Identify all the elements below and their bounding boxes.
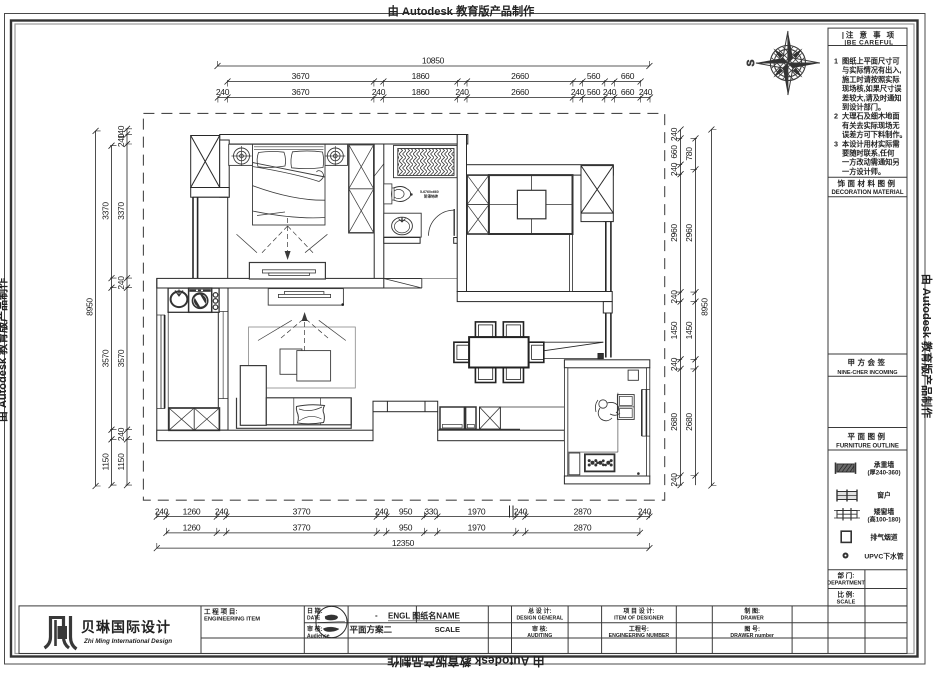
svg-text:矮窗墙: 矮窗墙 [873,507,895,516]
svg-text:2680: 2680 [669,413,679,431]
svg-text:ENGINEERING NUMBER: ENGINEERING NUMBER [609,633,670,639]
svg-text:AUDITING: AUDITING [527,633,552,639]
svg-text:240: 240 [116,276,126,290]
svg-text:240: 240 [603,87,617,97]
svg-text:DRAWER: DRAWER [741,616,764,622]
svg-text:5-6760x660: 5-6760x660 [420,190,439,194]
svg-text:部 门:: 部 门: [838,571,855,580]
svg-text:Audience: Audience [307,634,330,640]
svg-text:由 Autodesk 教育版产品制作: 由 Autodesk 教育版产品制作 [0,278,9,422]
svg-text:240: 240 [372,87,386,97]
svg-text:误差方可下料制作。: 误差方可下料制作。 [842,130,907,139]
svg-text:2: 2 [834,112,838,121]
svg-text:图纸上平面尺寸可: 图纸上平面尺寸可 [842,57,900,66]
svg-text:UPVC下水管: UPVC下水管 [864,552,903,561]
svg-text:240: 240 [571,87,585,97]
svg-text:240: 240 [669,473,679,487]
svg-text:甲方会签: 甲方会签 [848,357,888,367]
svg-text:一方改动需通知另: 一方改动需通知另 [842,158,900,167]
svg-text:工程号:: 工程号: [629,625,649,633]
svg-text:8950: 8950 [700,298,710,316]
svg-text:(高100-180): (高100-180) [867,516,900,524]
svg-text:大理石及细木地面: 大理石及细木地面 [842,112,900,121]
svg-text:950: 950 [399,523,413,533]
svg-text:240: 240 [455,87,469,97]
svg-text:SCALE: SCALE [837,600,856,606]
svg-text:1450: 1450 [669,321,679,339]
svg-text:|BE CAREFUL: |BE CAREFUL [844,40,893,47]
svg-text:排气烟道: 排气烟道 [870,533,897,542]
svg-text:2660: 2660 [511,87,529,97]
svg-text:DECORATION MATERIAL: DECORATION MATERIAL [831,190,903,196]
svg-text:图 号:: 图 号: [744,625,760,633]
svg-text:|注 意 事 项: |注 意 事 项 [842,30,896,40]
svg-text:780: 780 [684,147,694,161]
svg-text:平面图例: 平面图例 [848,431,888,441]
svg-text:3370: 3370 [116,202,126,220]
svg-text:施工时请按照实际: 施工时请按照实际 [842,75,900,84]
svg-text:660: 660 [621,87,635,97]
svg-text:FURNITURE OUTLINE: FURNITURE OUTLINE [836,444,899,450]
svg-text:3770: 3770 [293,506,311,516]
svg-text:DEPARTMENT: DEPARTMENT [827,581,865,587]
svg-text:1150: 1150 [116,453,126,471]
svg-text:240: 240 [669,127,679,141]
svg-text:日 期:: 日 期: [307,607,323,615]
svg-text:12350: 12350 [392,538,415,548]
svg-text:有关去实际现场无: 有关去实际现场无 [842,121,900,130]
svg-text:1260: 1260 [183,523,201,533]
svg-text:560: 560 [587,71,601,81]
svg-text:总 设 计:: 总 设 计: [528,607,551,615]
svg-text:本设计用材实际需: 本设计用材实际需 [842,139,900,148]
svg-text:240: 240 [116,133,126,147]
svg-text:(厚240-360): (厚240-360) [867,469,900,477]
svg-text:-: - [375,611,378,620]
svg-text:3670: 3670 [292,87,310,97]
svg-text:1260: 1260 [183,506,201,516]
svg-text:饰面材料图例: 饰面材料图例 [838,178,898,188]
svg-text:由 Autodesk 教育版产品制作: 由 Autodesk 教育版产品制作 [920,274,934,418]
svg-text:560: 560 [587,87,601,97]
svg-text:ENGL 图纸名NAME: ENGL 图纸名NAME [388,611,461,621]
svg-text:1970: 1970 [468,506,486,516]
svg-text:承重墙: 承重墙 [874,460,895,469]
svg-text:240: 240 [639,87,653,97]
svg-text:由 Autodesk 教育版产品制作: 由 Autodesk 教育版产品制作 [387,654,544,669]
svg-text:1970: 1970 [468,523,486,533]
svg-text:比 例:: 比 例: [838,590,855,599]
svg-text:3570: 3570 [101,349,111,367]
svg-text:项 目 设 计:: 项 目 设 计: [623,607,654,615]
svg-text:2680: 2680 [684,413,694,431]
svg-text:1: 1 [834,57,838,66]
svg-text:ITEM OF DESIGNER: ITEM OF DESIGNER [614,616,664,622]
svg-text:3770: 3770 [293,523,311,533]
svg-text:3670: 3670 [292,71,310,81]
svg-text:Zhi Ming International Design: Zhi Ming International Design [83,638,172,645]
svg-text:240: 240 [216,87,230,97]
svg-text:ENGINEERING ITEM: ENGINEERING ITEM [204,617,260,623]
svg-text:一方设计师。: 一方设计师。 [842,167,885,176]
svg-text:1860: 1860 [412,71,430,81]
svg-text:2870: 2870 [574,506,592,516]
svg-text:2960: 2960 [684,224,694,242]
svg-text:到设计部门。: 到设计部门。 [842,103,885,112]
svg-text:S: S [746,59,757,66]
svg-text:审 核:: 审 核: [307,625,323,633]
svg-text:240: 240 [116,427,126,441]
svg-text:3370: 3370 [101,202,111,220]
svg-text:2870: 2870 [574,523,592,533]
svg-text:防滑地砖: 防滑地砖 [424,194,438,199]
svg-text:现场核,如果尺寸误: 现场核,如果尺寸误 [842,84,902,93]
svg-text:差较大,请及时通知: 差较大,请及时通知 [842,93,902,102]
svg-text:制 图:: 制 图: [744,607,760,615]
svg-text:工 程 项 目:: 工 程 项 目: [204,607,238,616]
svg-text:10850: 10850 [422,56,445,66]
svg-text:330: 330 [424,506,438,516]
svg-text:3570: 3570 [116,349,126,367]
svg-text:DRAWER number: DRAWER number [730,633,774,639]
svg-text:由 Autodesk 教育版产品制作: 由 Autodesk 教育版产品制作 [388,4,535,18]
svg-text:2960: 2960 [669,224,679,242]
svg-text:1450: 1450 [684,321,694,339]
svg-text:660: 660 [669,145,679,159]
svg-text:1860: 1860 [412,87,430,97]
svg-text:1150: 1150 [101,453,111,471]
svg-text:与实际情况有出入,: 与实际情况有出入, [842,66,902,75]
svg-text:贝琳国际设计: 贝琳国际设计 [81,619,171,635]
svg-text:NINE-CHER INCOMING: NINE-CHER INCOMING [837,370,897,376]
svg-text:平面方案二: 平面方案二 [350,625,393,635]
svg-text:DATE: DATE [307,616,321,622]
svg-text:660: 660 [621,71,635,81]
svg-text:8950: 8950 [85,298,95,316]
svg-text:3: 3 [834,139,838,148]
svg-text:950: 950 [399,506,413,516]
svg-text:DESIGN GENERAL: DESIGN GENERAL [516,616,564,622]
svg-text:SCALE: SCALE [435,625,460,634]
svg-text:2660: 2660 [511,71,529,81]
svg-text:要随时联系,任何: 要随时联系,任何 [842,149,895,158]
svg-text:窗户: 窗户 [877,491,891,500]
svg-text:审 核:: 审 核: [532,625,548,633]
